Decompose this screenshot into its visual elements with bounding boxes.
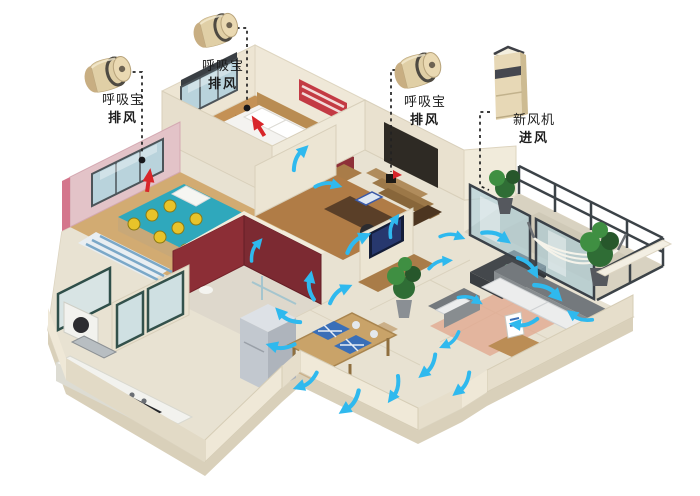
- fresh-air-unit: [494, 47, 528, 120]
- bath-fixture: [199, 286, 213, 294]
- ventilation-floorplan-illustration: 呼吸宝 排风 呼吸宝 排风 呼吸宝 排风 新风机 进风: [0, 0, 700, 496]
- label-text: 新风机: [498, 112, 570, 130]
- label-text: 排风: [388, 112, 462, 130]
- label-fresh-air: 新风机 进风: [498, 112, 570, 148]
- label-text: 排风: [186, 76, 260, 94]
- exhaust-device-master: [190, 11, 241, 51]
- exhaust-device-child: [81, 54, 134, 96]
- label-text: 呼吸宝: [86, 92, 160, 110]
- label-text: 进风: [498, 130, 570, 148]
- label-exhaust-child: 呼吸宝 排风: [86, 92, 160, 128]
- label-exhaust-master: 呼吸宝 排风: [186, 58, 260, 94]
- label-text: 呼吸宝: [388, 94, 462, 112]
- exhaust-point-child: [139, 157, 146, 164]
- label-text: 呼吸宝: [186, 58, 260, 76]
- exhaust-point-master: [244, 105, 251, 112]
- label-exhaust-study: 呼吸宝 排风: [388, 94, 462, 130]
- isometric-apartment-scene: [0, 0, 700, 496]
- exhaust-device-study: [391, 50, 444, 92]
- label-text: 排风: [86, 110, 160, 128]
